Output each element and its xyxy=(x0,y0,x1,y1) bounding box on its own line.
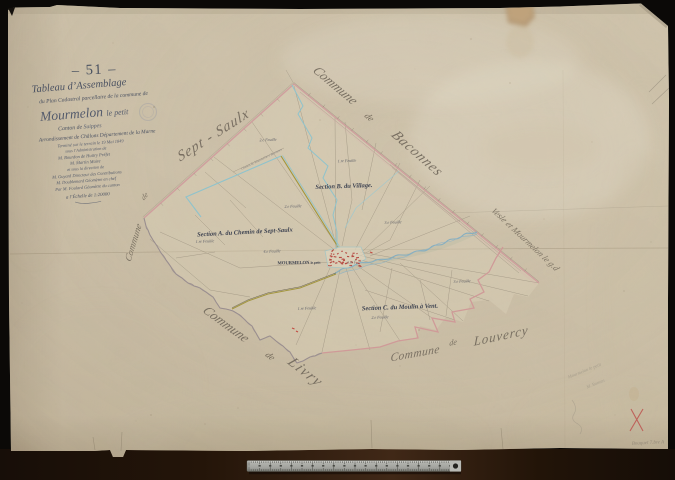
svg-text:2.e Feuille: 2.e Feuille xyxy=(284,203,301,209)
svg-text:2.e Feuille: 2.e Feuille xyxy=(371,314,388,320)
svg-text:1.re Feuille: 1.re Feuille xyxy=(338,158,357,164)
svg-text:de: de xyxy=(449,337,457,348)
svg-text:– 51 –: – 51 – xyxy=(70,61,117,79)
svg-text:MOURMELON le petit: MOURMELON le petit xyxy=(277,260,321,266)
svg-text:4.e Feuille: 4.e Feuille xyxy=(263,248,280,254)
svg-text:1.re Feuille: 1.re Feuille xyxy=(298,305,317,311)
svg-text:3.e Feuille: 3.e Feuille xyxy=(384,219,401,225)
svg-text:1.re Feuille: 1.re Feuille xyxy=(196,238,215,244)
svg-text:2.e Feuille: 2.e Feuille xyxy=(259,137,276,143)
svg-text:1.re F.: 1.re F. xyxy=(347,259,357,264)
svg-text:3.e Feuille: 3.e Feuille xyxy=(453,278,470,284)
